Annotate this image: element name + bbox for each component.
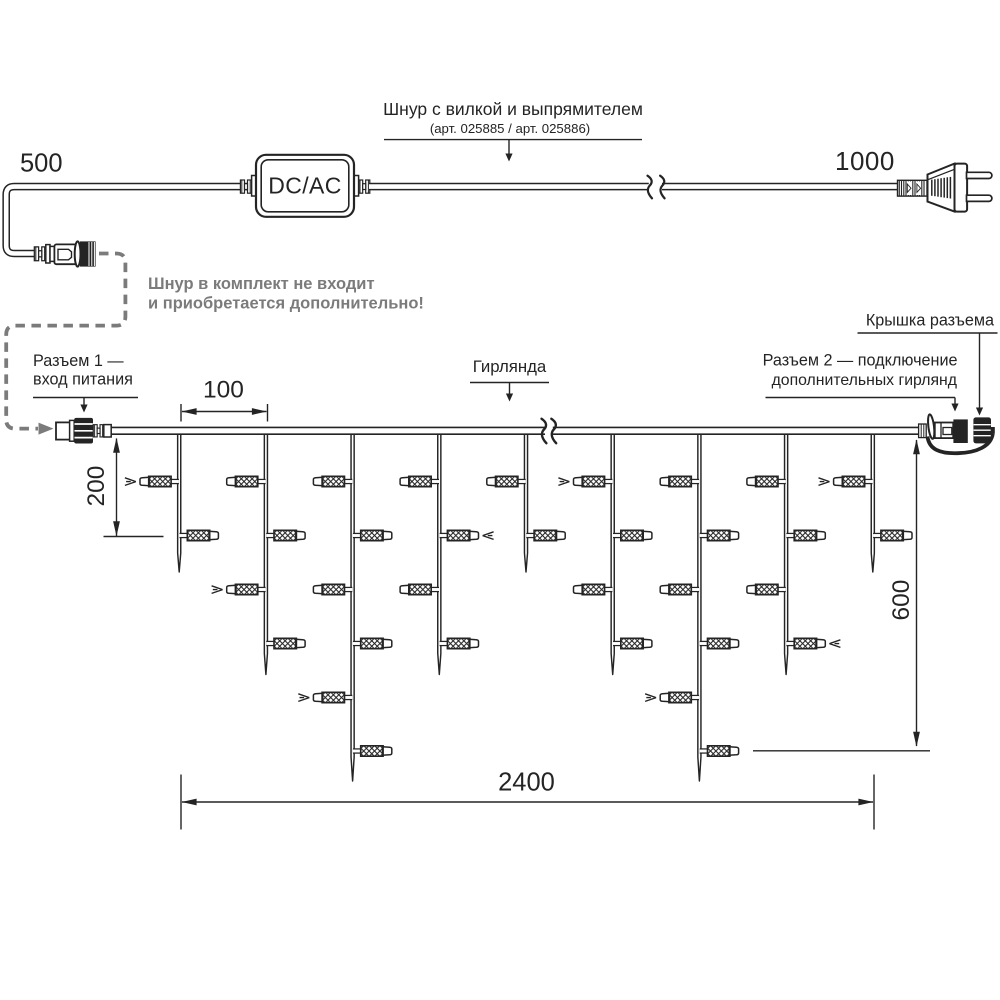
svg-text:Разъем 1 —: Разъем 1 —: [33, 352, 124, 370]
svg-text:(арт. 025885 / арт. 025886): (арт. 025885 / арт. 025886): [430, 121, 590, 136]
svg-text:DC/AC: DC/AC: [268, 173, 342, 199]
svg-text:1000: 1000: [835, 146, 895, 176]
svg-text:Крышка разъема: Крышка разъема: [866, 312, 994, 330]
svg-text:Гирлянда: Гирлянда: [473, 357, 547, 376]
svg-text:600: 600: [888, 580, 915, 621]
svg-text:100: 100: [203, 377, 244, 404]
svg-text:Разъем 2 — подключение: Разъем 2 — подключение: [763, 352, 958, 370]
svg-text:500: 500: [20, 150, 63, 178]
svg-text:2400: 2400: [498, 769, 555, 797]
svg-text:дополнительных гирлянд: дополнительных гирлянд: [772, 372, 957, 389]
svg-text:вход питания: вход питания: [33, 371, 133, 389]
svg-text:200: 200: [83, 466, 110, 507]
svg-text:Шнур с вилкой и выпрямителем: Шнур с вилкой и выпрямителем: [383, 99, 643, 119]
svg-text:Шнур в комплект не входит: Шнур в комплект не входит: [148, 275, 375, 293]
svg-text:и приобретается дополнительно!: и приобретается дополнительно!: [148, 295, 424, 313]
